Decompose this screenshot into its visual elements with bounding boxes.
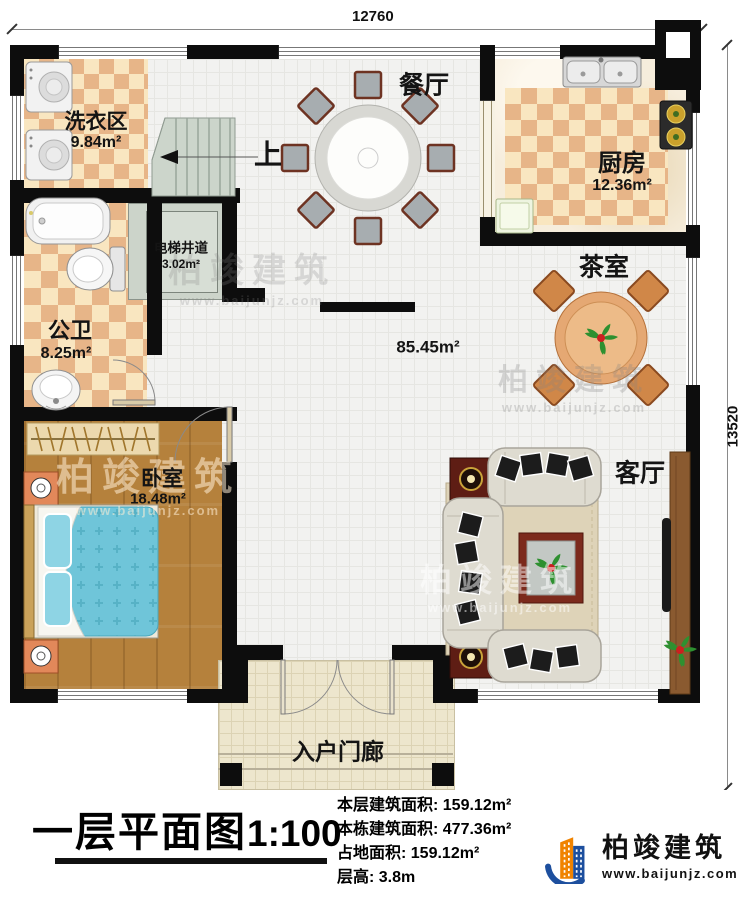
washing-machine bbox=[26, 130, 72, 180]
title-underline bbox=[55, 858, 327, 864]
logo-name: 柏竣建筑 bbox=[602, 835, 738, 862]
logo-icon bbox=[542, 832, 594, 884]
room-label-laundry: 洗衣区 bbox=[65, 112, 128, 133]
room-label-porch: 入户门廊 bbox=[292, 741, 384, 764]
plan-scale: 1:100 bbox=[247, 813, 342, 854]
nightstand bbox=[24, 640, 58, 673]
bed bbox=[24, 505, 158, 638]
room-area-kitchen: 12.36m² bbox=[592, 178, 652, 194]
stairs-up-label: 上 bbox=[254, 141, 282, 169]
stat-floor-area: 本层建筑面积: 159.12m² bbox=[337, 796, 511, 816]
bathtub bbox=[26, 198, 110, 244]
toilet bbox=[67, 247, 125, 291]
bedroom-door bbox=[175, 407, 232, 462]
plan-title: 一层平面图 bbox=[32, 809, 247, 855]
room-area-bath: 8.25m² bbox=[41, 346, 92, 362]
stat-footprint-area: 占地面积: 159.12m² bbox=[337, 844, 511, 864]
room-label-kitchen: 厨房 bbox=[598, 152, 646, 176]
plan-title-row: 一层平面图1:100 bbox=[32, 798, 342, 858]
stove bbox=[660, 101, 692, 149]
footer: 一层平面图1:100 本层建筑面积: 159.12m² 本栋建筑面积: 477.… bbox=[0, 790, 750, 901]
bathroom-sink bbox=[32, 370, 80, 410]
room-label-dining: 餐厅 bbox=[399, 74, 449, 99]
corner-cabinet bbox=[450, 458, 492, 500]
hall-area-label: 85.45m² bbox=[396, 339, 459, 356]
pillow bbox=[44, 572, 71, 626]
wardrobe bbox=[27, 423, 159, 455]
sofa-top bbox=[488, 448, 601, 506]
tv-icon bbox=[662, 518, 671, 612]
room-area-elevator: 3.02m² bbox=[162, 258, 200, 270]
tv-cabinet bbox=[662, 452, 697, 694]
logo-url: www.baijunjz.com bbox=[602, 866, 738, 881]
room-area-laundry: 9.84m² bbox=[71, 135, 122, 151]
sofa-bottom bbox=[488, 630, 601, 682]
washing-machine bbox=[26, 62, 72, 112]
stat-building-area: 本栋建筑面积: 477.36m² bbox=[337, 820, 511, 840]
stat-floor-height: 层高: 3.8m bbox=[337, 868, 511, 888]
room-label-tea: 茶室 bbox=[579, 256, 629, 281]
floor-plan-canvas: 12760 13520 bbox=[0, 0, 750, 901]
cutting-board bbox=[496, 199, 533, 233]
room-label-bath: 公卫 bbox=[48, 320, 92, 342]
pillow bbox=[44, 514, 71, 568]
bath-door bbox=[113, 360, 155, 405]
entry-double-door bbox=[281, 660, 394, 714]
room-label-living: 客厅 bbox=[615, 462, 665, 487]
kitchen-sink bbox=[563, 57, 641, 87]
room-label-elevator: 电梯井道 bbox=[154, 241, 208, 255]
staircase bbox=[152, 118, 258, 196]
logo-text: 柏竣建筑 www.baijunjz.com bbox=[602, 835, 738, 881]
area-stats: 本层建筑面积: 159.12m² 本栋建筑面积: 477.36m² 占地面积: … bbox=[337, 796, 511, 892]
coffee-table bbox=[519, 533, 583, 603]
company-logo: 柏竣建筑 www.baijunjz.com bbox=[542, 832, 738, 884]
room-area-bedroom: 18.48m² bbox=[130, 492, 186, 507]
nightstand bbox=[24, 472, 58, 505]
room-label-bedroom: 卧室 bbox=[141, 469, 183, 490]
tea-set bbox=[533, 270, 669, 406]
sofa-left bbox=[443, 498, 503, 648]
